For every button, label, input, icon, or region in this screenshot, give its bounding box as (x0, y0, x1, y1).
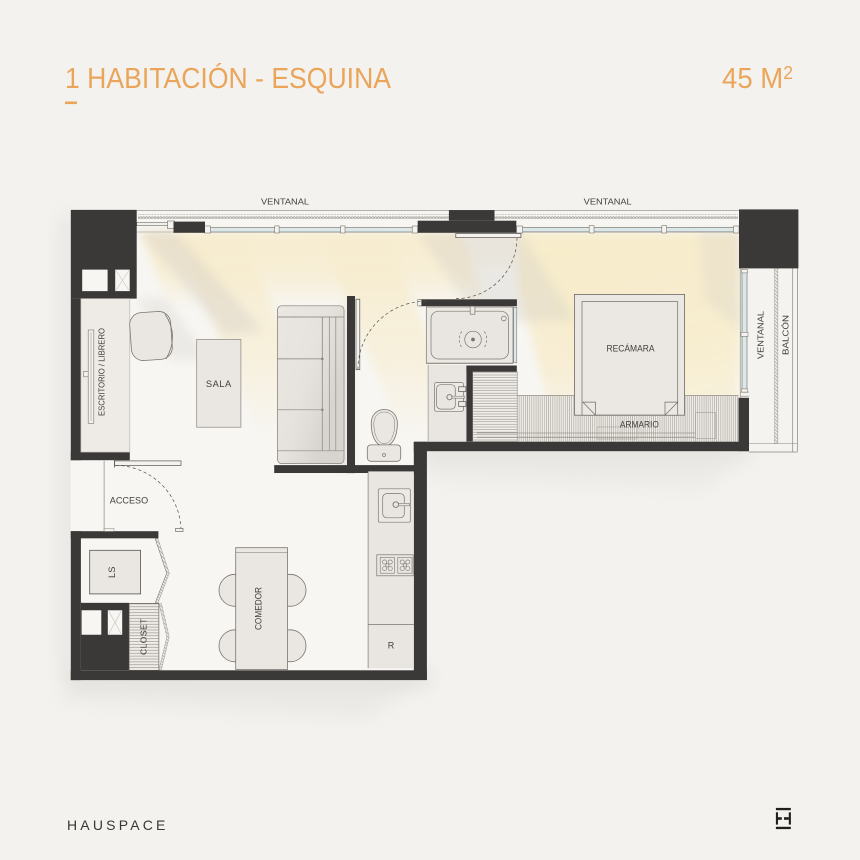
svg-text:ACCESO: ACCESO (110, 496, 148, 506)
svg-text:45 M2: 45 M2 (722, 62, 793, 95)
svg-text:1 HABITACIÓN - ESQUINA: 1 HABITACIÓN - ESQUINA (65, 62, 392, 95)
svg-text:VENTANAL: VENTANAL (756, 311, 766, 359)
svg-text:VENTANAL: VENTANAL (584, 197, 632, 207)
svg-text:R: R (388, 641, 395, 651)
svg-text:LS: LS (107, 566, 117, 578)
svg-text:RECÁMARA: RECÁMARA (607, 344, 656, 355)
svg-text:ESCRITORIO / LIBRERO: ESCRITORIO / LIBRERO (98, 328, 107, 416)
svg-text:BALCÓN: BALCÓN (781, 315, 791, 355)
svg-text:HAUSPACE: HAUSPACE (67, 817, 169, 833)
svg-text:VENTANAL: VENTANAL (261, 197, 309, 207)
svg-text:COMEDOR: COMEDOR (253, 587, 263, 630)
svg-text:SALA: SALA (206, 379, 232, 389)
svg-text:ARMARIO: ARMARIO (620, 420, 659, 430)
svg-text:CLOSET: CLOSET (139, 618, 149, 655)
